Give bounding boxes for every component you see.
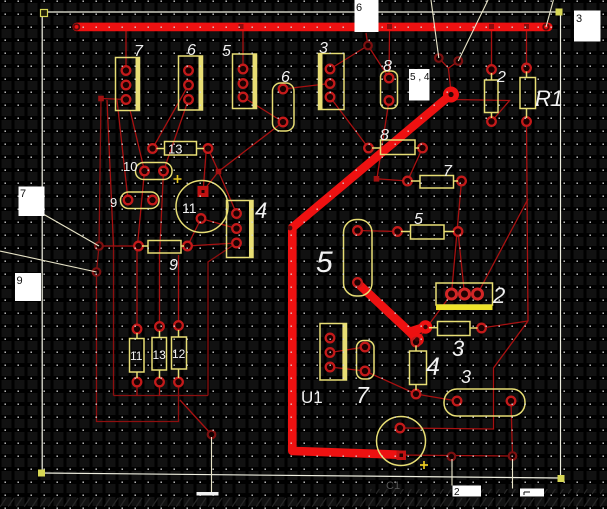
svg-text:3: 3 [576,13,582,25]
svg-text:4: 4 [426,353,440,381]
svg-text:5 , 4: 5 , 4 [410,72,430,83]
svg-text:C1: C1 [386,480,400,492]
svg-text:2: 2 [454,487,460,498]
svg-text:2: 2 [492,283,505,308]
svg-text:3: 3 [319,40,328,57]
svg-text:12: 12 [172,347,186,361]
svg-text:5: 5 [414,211,423,228]
svg-text:2: 2 [496,69,506,86]
svg-text:11: 11 [182,200,197,216]
svg-text:7: 7 [20,188,26,200]
svg-text:6: 6 [281,69,290,86]
svg-text:10: 10 [123,159,137,174]
svg-text:9: 9 [17,275,23,287]
svg-text:13: 13 [153,348,167,362]
svg-text:8: 8 [380,127,389,144]
svg-text:5: 5 [316,246,333,279]
svg-text:6: 6 [356,2,362,14]
svg-text:3: 3 [461,367,471,387]
svg-text:6: 6 [187,42,196,59]
svg-text:3: 3 [452,336,465,361]
svg-text:7: 7 [356,382,370,408]
svg-text:7: 7 [134,43,144,60]
svg-text:4: 4 [255,198,267,223]
svg-text:9: 9 [110,195,117,210]
svg-text:5: 5 [222,43,231,60]
svg-text:11: 11 [130,349,143,363]
svg-text:13: 13 [168,142,182,157]
svg-text:8: 8 [383,58,392,75]
svg-text:7: 7 [443,163,453,180]
svg-text:R1: R1 [535,86,563,111]
svg-text:U1: U1 [301,388,323,407]
svg-text:9: 9 [169,257,178,274]
